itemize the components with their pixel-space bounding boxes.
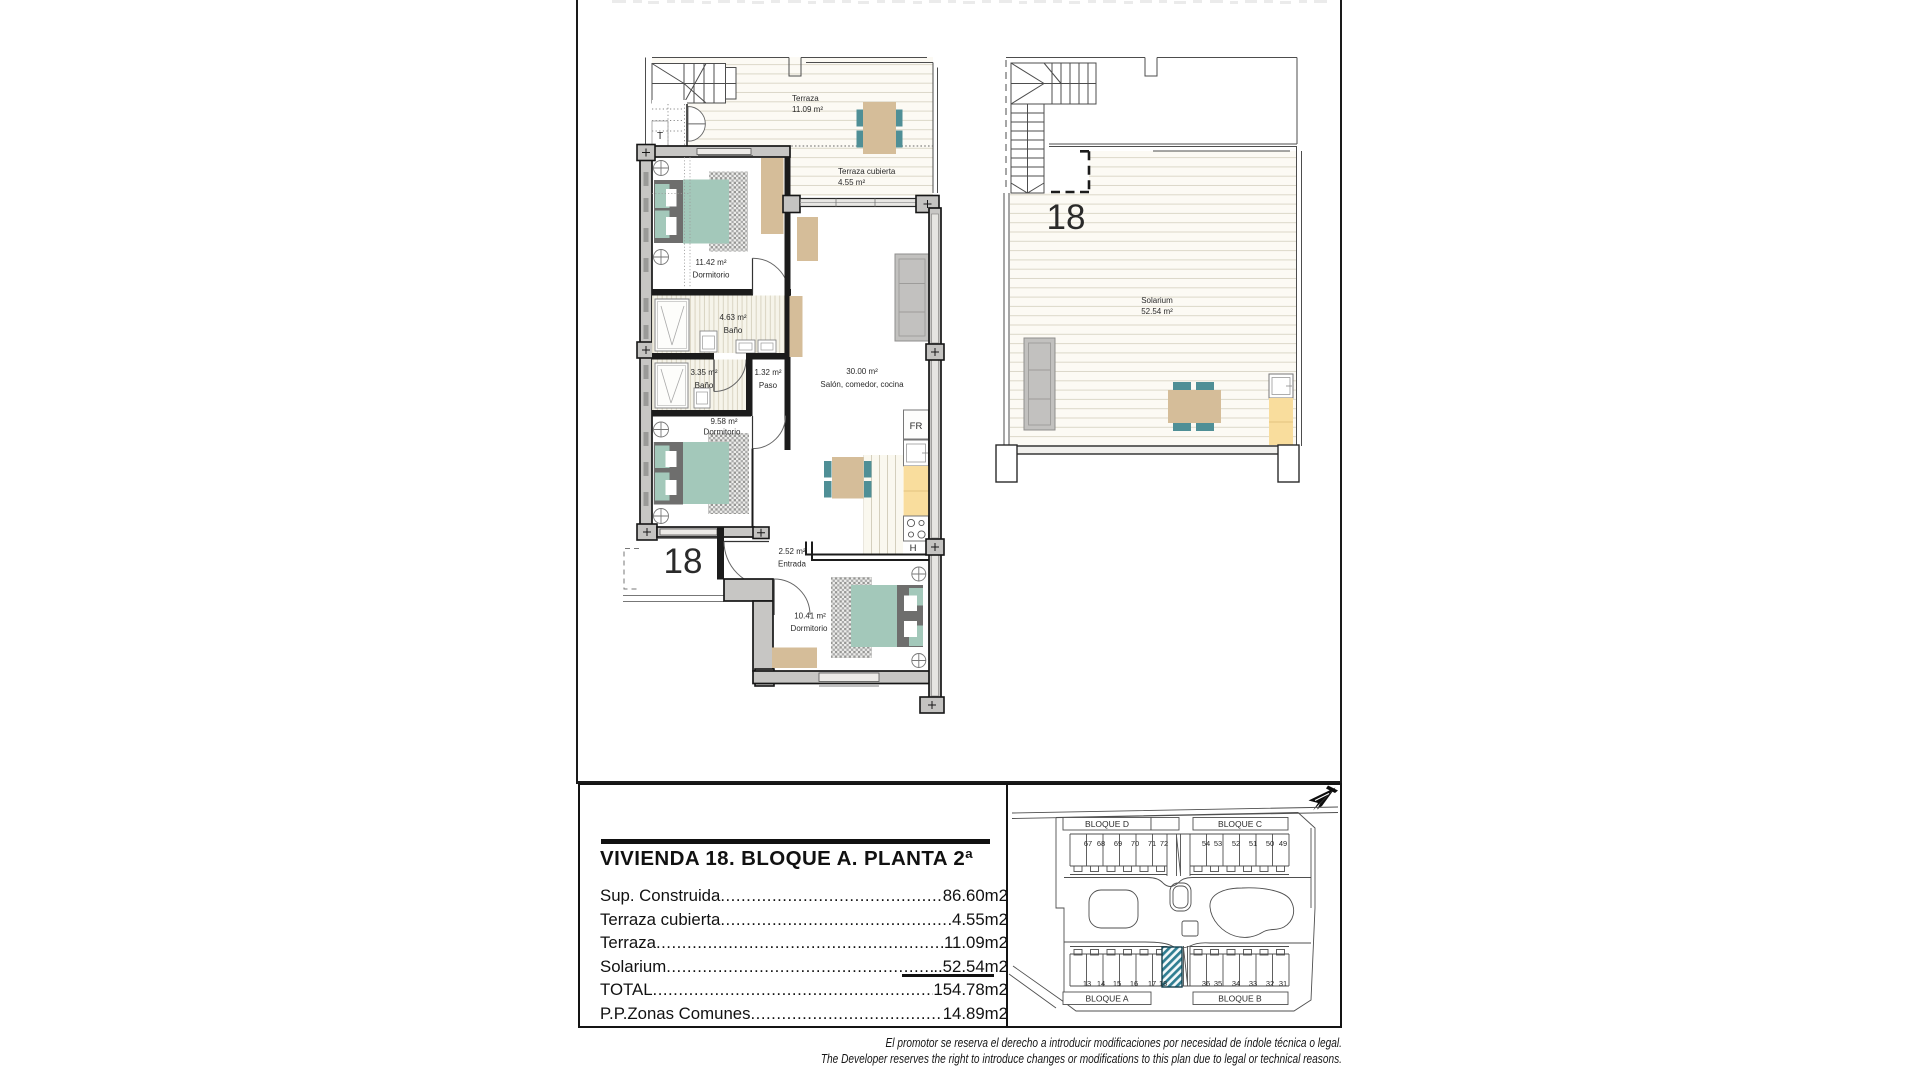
- svg-text:H: H: [910, 543, 917, 554]
- svg-text:2.52 m²: 2.52 m²: [778, 547, 805, 556]
- svg-text:Entrada: Entrada: [778, 560, 807, 569]
- svg-text:4.63 m²: 4.63 m²: [719, 313, 746, 322]
- svg-text:Dormitorio: Dormitorio: [791, 624, 828, 633]
- svg-text:10.41 m²: 10.41 m²: [794, 612, 826, 621]
- svg-text:11.09 m²: 11.09 m²: [792, 105, 823, 114]
- svg-text:Terraza: Terraza: [792, 94, 819, 103]
- svg-text:T: T: [657, 131, 663, 142]
- svg-text:Salón, comedor, cocina: Salón, comedor, cocina: [820, 380, 904, 389]
- svg-text:Terraza cubierta: Terraza cubierta: [838, 167, 896, 176]
- svg-text:Baño: Baño: [724, 326, 743, 335]
- svg-text:Dormitorio: Dormitorio: [704, 428, 741, 437]
- svg-text:11.42 m²: 11.42 m²: [696, 258, 727, 267]
- svg-text:52.54 m²: 52.54 m²: [1141, 307, 1173, 316]
- svg-text:Dormitorio: Dormitorio: [693, 271, 730, 280]
- svg-text:18: 18: [1047, 198, 1086, 237]
- svg-text:Solarium: Solarium: [1141, 296, 1173, 305]
- svg-text:3.35 m²: 3.35 m²: [690, 368, 717, 377]
- svg-text:1.32 m²: 1.32 m²: [754, 368, 781, 377]
- svg-text:Baño: Baño: [695, 381, 714, 390]
- svg-text:30.00 m²: 30.00 m²: [846, 367, 878, 376]
- svg-text:FR: FR: [910, 421, 923, 432]
- svg-text:9.58 m²: 9.58 m²: [710, 417, 737, 426]
- svg-text:Paso: Paso: [759, 381, 778, 390]
- svg-text:4.55 m²: 4.55 m²: [838, 178, 865, 187]
- svg-text:18: 18: [664, 542, 703, 581]
